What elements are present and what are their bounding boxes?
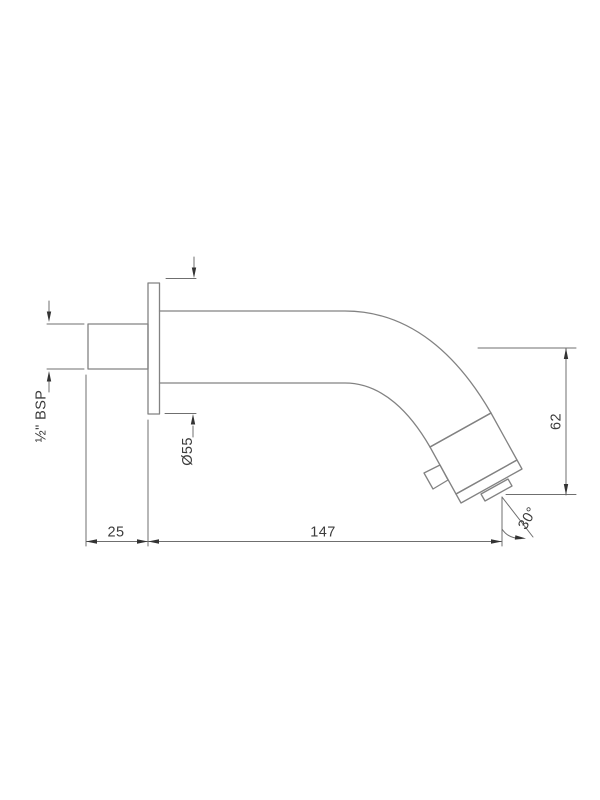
dim25-arrow-right <box>137 539 148 543</box>
reach-label: 147 <box>310 525 335 541</box>
spout-angle-label: 30° <box>515 504 540 532</box>
dimension-lines <box>47 257 576 546</box>
angle-arc-arrow <box>515 535 526 539</box>
wall-flange-outline <box>148 283 160 414</box>
dim147-arrow-left <box>148 539 159 543</box>
flange-diameter-label: Ø55 <box>180 437 196 466</box>
dia55-arrow-bottom <box>191 414 195 425</box>
spout-head-cap <box>456 460 522 503</box>
dim25-arrow-left <box>86 539 97 543</box>
dimension-texts: 25 147 62 Ø55 ½" BSP 30° <box>34 390 565 541</box>
dimension-arrows <box>47 268 568 544</box>
spout-body-geometry <box>88 283 522 503</box>
bsp-arrow-bottom <box>47 371 51 382</box>
head-side-button <box>424 465 448 489</box>
spout-lower-edge <box>160 383 431 447</box>
inlet-pipe-outline <box>88 324 148 369</box>
spout-upper-edge <box>160 311 492 413</box>
wall-offset-label: 25 <box>108 525 125 541</box>
drawing-canvas: 25 147 62 Ø55 ½" BSP 30° <box>0 0 600 800</box>
dim147-arrow-right <box>491 539 502 543</box>
dia55-arrow-top <box>192 268 196 279</box>
bsp-arrow-top <box>47 312 51 323</box>
height-label: 62 <box>549 413 565 430</box>
dim62-arrow-top <box>564 348 568 359</box>
spout-dimension-drawing: 25 147 62 Ø55 ½" BSP 30° <box>0 0 600 800</box>
thread-size-label: ½" BSP <box>34 390 50 443</box>
dim62-arrow-bottom <box>564 484 568 495</box>
